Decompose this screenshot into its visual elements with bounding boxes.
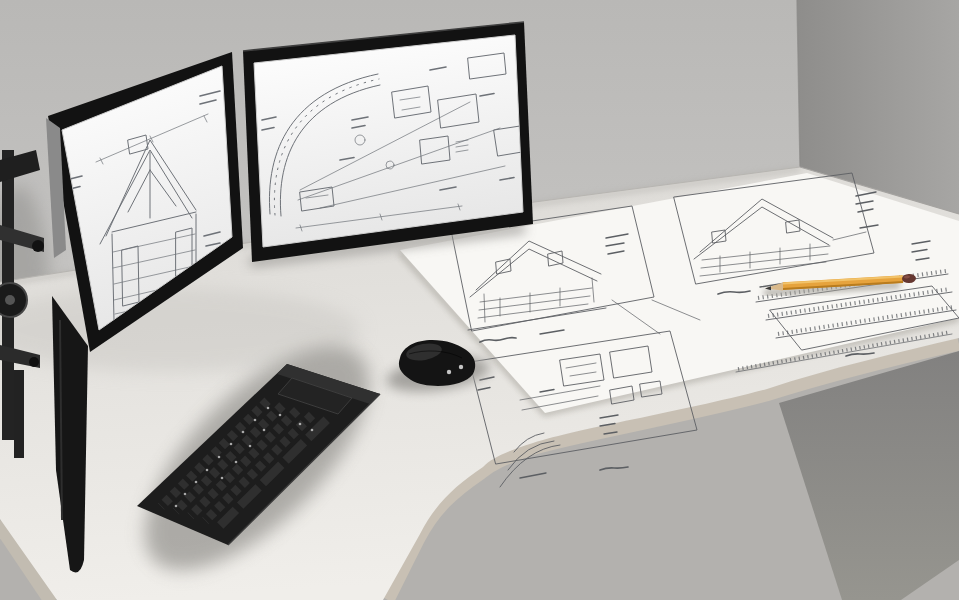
- arm-joint-cap: [5, 295, 15, 305]
- right-monitor: [243, 22, 533, 262]
- arm-lower-pole: [14, 370, 24, 458]
- arm-knob-upper: [32, 240, 44, 252]
- mouse-button-glint-2: [459, 365, 463, 369]
- desk-scene-illustration: [0, 0, 959, 600]
- workstation-photo: [0, 0, 959, 600]
- arm-knob-lower: [29, 357, 39, 367]
- mouse-button-glint-1: [447, 370, 451, 374]
